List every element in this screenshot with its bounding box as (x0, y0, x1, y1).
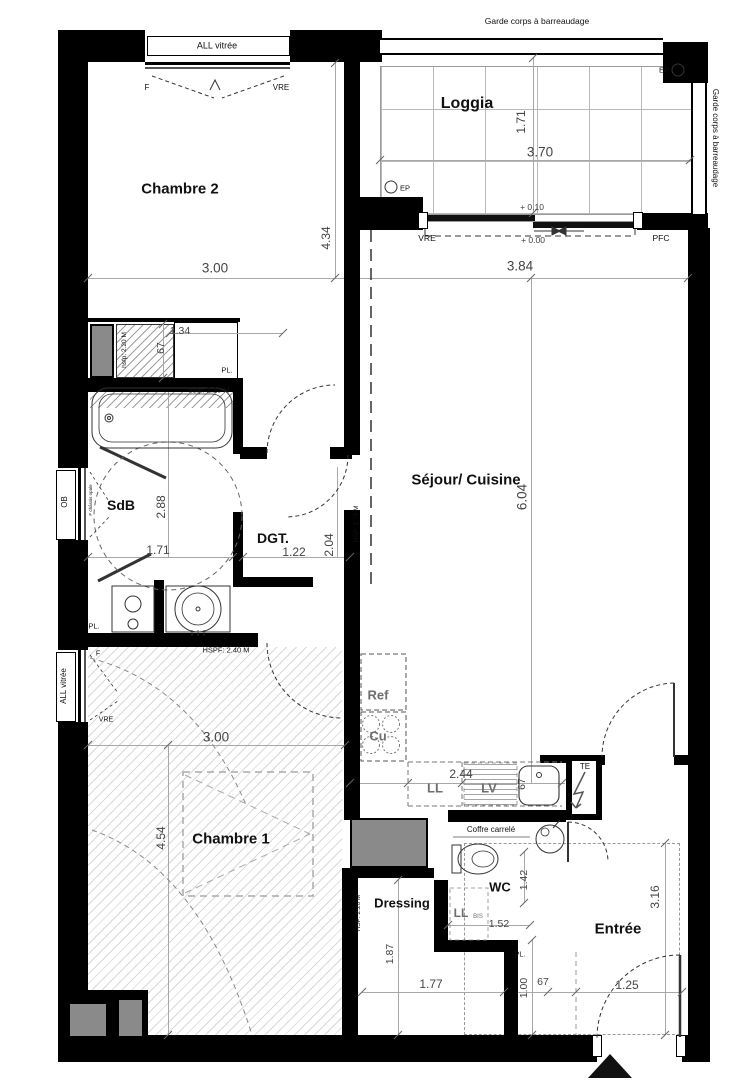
dim-dgt-width: 1.22 (282, 546, 305, 558)
dim-pl-67: 67 (537, 977, 549, 988)
note-hsp-220-dressing: HSP: 2.20 M (356, 895, 363, 932)
room-label-entree: Entrée (595, 922, 642, 937)
window-sdb-note: F châssis opale (89, 484, 94, 515)
dim-ch1-height: 4.54 (155, 826, 167, 849)
closet-pl-label: PL. (221, 366, 232, 374)
dim-sdb-width: 1.71 (146, 544, 169, 556)
dim-closet-134: 1.34 (170, 326, 190, 337)
wc-pl-label: PL. (515, 952, 526, 959)
dim-wc-152: 1.52 (489, 919, 509, 930)
room-label-wc: WC (489, 881, 511, 894)
level-plus-010: + 0.10 (520, 203, 544, 212)
room-label-sdb: SdB (107, 498, 135, 512)
note-hsp-270: HSP: 2.70 M (354, 506, 361, 543)
room-label-dgt: DGT. (257, 531, 289, 545)
kitchen-ll-label: LL (427, 782, 443, 795)
te-label: TE (580, 763, 590, 771)
labels-layer: Garde corps à barreaudageGarde corps à b… (0, 0, 750, 1080)
ep-bottom-label: EP (400, 184, 410, 192)
window-vre-ch1: VRE (99, 717, 113, 724)
garde-corps-right-label: Garde corps à barreaudage (711, 89, 719, 187)
kitchen-cu-label: Cu (369, 730, 386, 743)
window-ob-label: OB (61, 496, 69, 508)
room-label-dressing: Dressing (374, 897, 430, 910)
dim-closet-67: 67 (156, 342, 167, 354)
slider-vre-label: VRE (418, 234, 435, 243)
dim-loggia-depth: 1.71 (515, 110, 527, 133)
note-hsfp-220-closet: hsfp: 2.20 M (122, 332, 129, 368)
ep-top-label: EP (659, 66, 669, 74)
dim-loggia-width: 3.70 (527, 145, 553, 159)
window-f-ch1: F (96, 651, 100, 658)
window-f-ch2: F (145, 84, 150, 92)
dim-ch2-width: 3.00 (202, 261, 228, 275)
wc-llbis-sub: BIS (473, 914, 483, 920)
dim-entree-316: 3.16 (649, 885, 661, 908)
dim-wc-142: 1.42 (519, 870, 530, 890)
wc-llbis-label: LL (454, 907, 469, 919)
dim-sink-67: 67 (517, 778, 528, 790)
dim-dressing-177: 1.77 (419, 978, 442, 990)
kitchen-lv-label: LV (481, 782, 497, 795)
note-hspf-240: HSPF: 2.40 M (202, 646, 249, 654)
dim-door-125: 1.25 (615, 979, 638, 991)
room-label-chambre1: Chambre 1 (192, 832, 270, 847)
window-vre-ch2: VRE (273, 84, 289, 92)
floor-plan: Garde corps à barreaudageGarde corps à b… (0, 0, 750, 1080)
dim-pl-100: 1.00 (519, 978, 530, 998)
garde-corps-top-label: Garde corps à barreaudage (485, 17, 589, 26)
dim-kitchen-244: 2.44 (449, 768, 472, 780)
dim-ch1-width: 3.00 (203, 730, 229, 744)
room-label-sejour: Séjour/ Cuisine (411, 473, 520, 488)
slider-pfc-label: PFC (653, 234, 670, 243)
dim-sejour-width: 3.84 (507, 259, 533, 273)
note-hsfp-220-tub: hsfp: 2.20 M (188, 386, 229, 394)
dim-dgt-height: 2.04 (323, 533, 335, 556)
dim-ch2-height: 4.34 (320, 226, 332, 249)
room-label-chambre2: Chambre 2 (141, 182, 219, 197)
dim-sdb-height: 2.88 (155, 495, 167, 518)
level-plus-000: + 0.00 (521, 236, 545, 245)
coffre-label: Coffre carrelé (467, 826, 515, 834)
window-label-ch2: ALL vitrée (197, 42, 237, 51)
window-label-ch1: ALL vitrée (60, 668, 68, 704)
room-label-loggia: Loggia (441, 96, 493, 112)
dim-dressing-187: 1.87 (385, 944, 396, 964)
sdb-pl-label: PL. (88, 622, 99, 630)
kitchen-ref-label: Ref (368, 689, 389, 702)
